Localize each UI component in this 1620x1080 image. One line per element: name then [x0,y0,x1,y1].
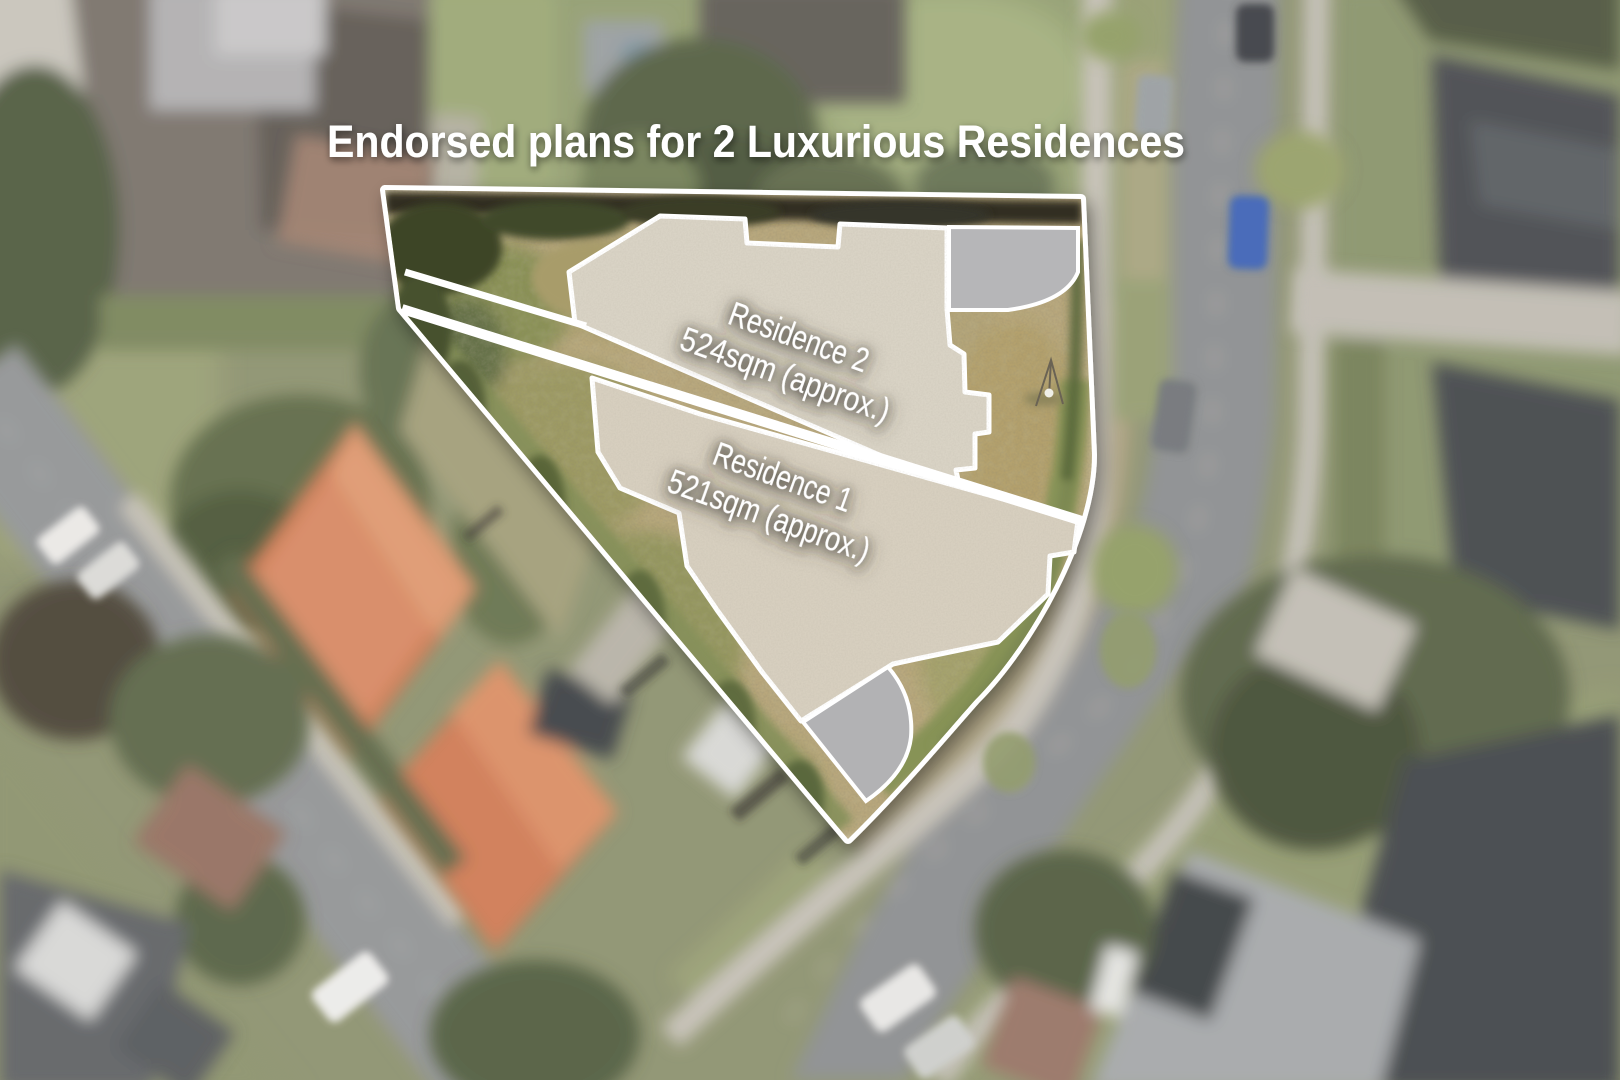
svg-text:Endorsed plans for 2 Luxurious: Endorsed plans for 2 Luxurious Residence… [327,116,1185,167]
